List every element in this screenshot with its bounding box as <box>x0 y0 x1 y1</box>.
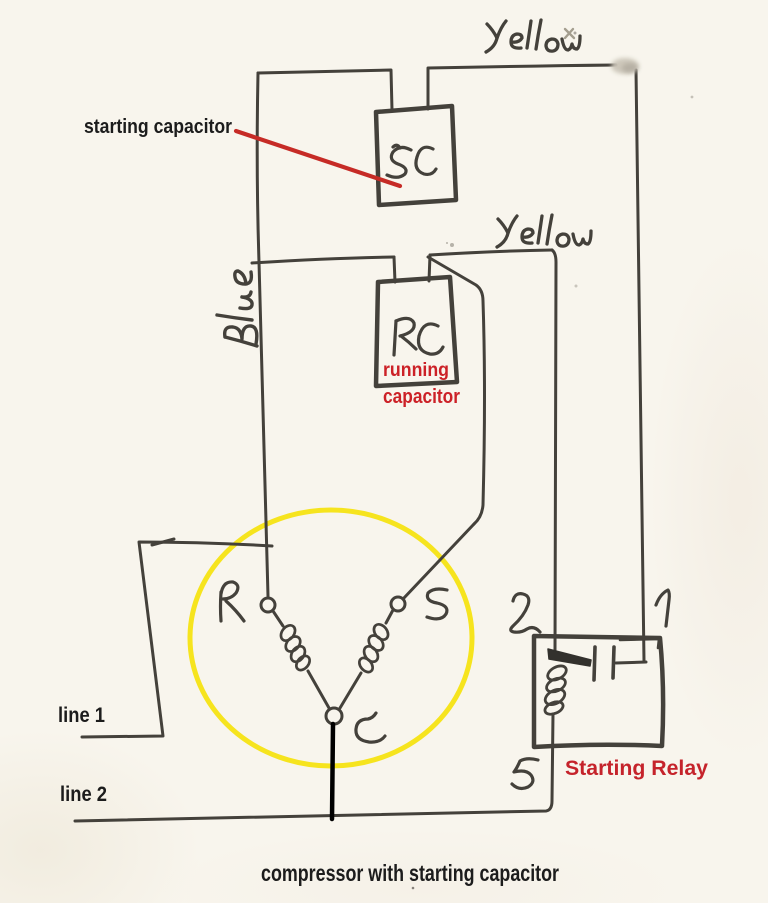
svg-text:compressor with starting capac: compressor with starting capacitor <box>261 860 559 886</box>
svg-text:line 2: line 2 <box>60 783 107 806</box>
svg-text:starting capacitor: starting capacitor <box>84 116 232 138</box>
svg-text:running: running <box>383 360 449 381</box>
svg-text:capacitor: capacitor <box>383 386 460 408</box>
svg-text:Starting Relay: Starting Relay <box>565 757 708 780</box>
svg-text:line 1: line 1 <box>58 704 105 727</box>
